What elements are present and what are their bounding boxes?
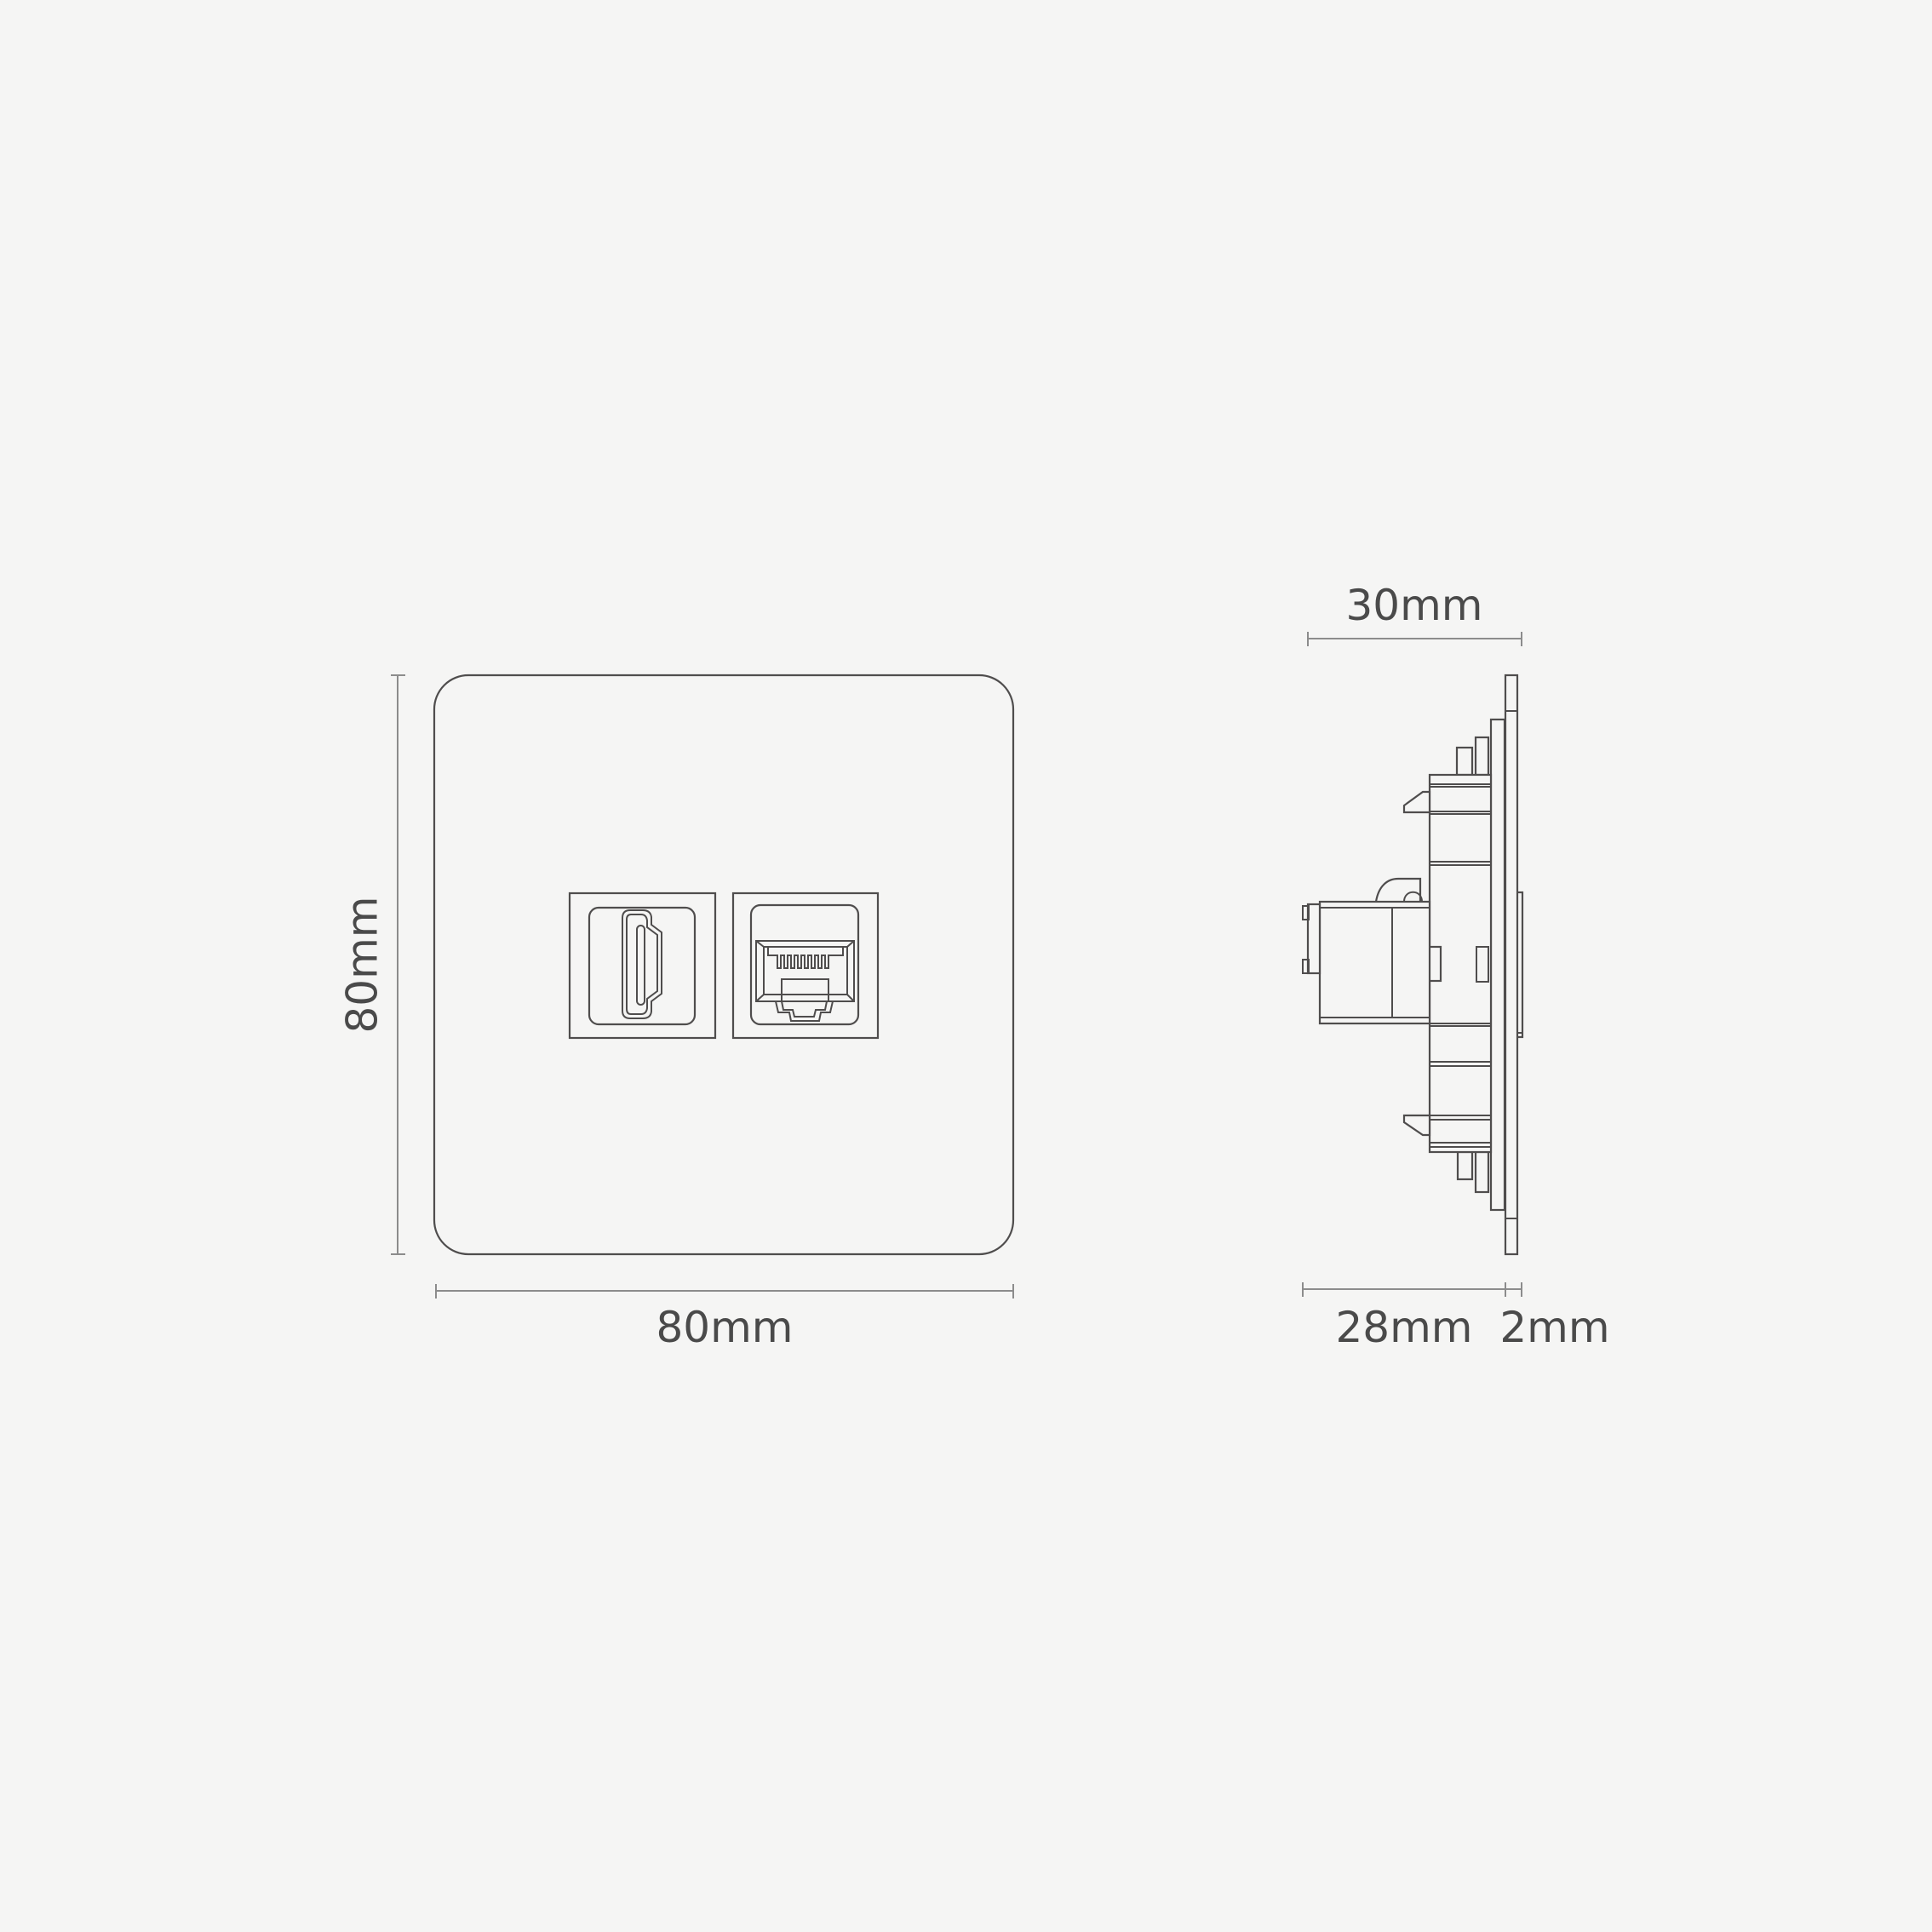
side-bottom-clip <box>1404 1115 1430 1135</box>
side-top-clip <box>1404 792 1430 812</box>
front-width-label: 80mm <box>656 1303 793 1352</box>
side-plate-thickness-label: 2mm <box>1499 1303 1609 1352</box>
front-height-label: 80mm <box>338 896 387 1033</box>
side-overall-depth-label: 30mm <box>1345 581 1482 630</box>
side-split-depth-dimension: 28mm 2mm <box>1303 1282 1610 1352</box>
side-keystone-module <box>1303 879 1430 1023</box>
side-bottom-prongs <box>1458 1152 1488 1192</box>
front-width-dimension: 80mm <box>436 1284 1013 1352</box>
keystone-latch <box>1376 879 1420 902</box>
dimension-diagram: 80mm 80mm 30mm 28mm 2mm <box>0 0 1932 1932</box>
side-view <box>1303 675 1522 1254</box>
rj45-module <box>733 893 878 1038</box>
side-overall-depth-dimension: 30mm <box>1308 581 1522 646</box>
hdmi-module <box>570 893 715 1038</box>
side-faceplate <box>1505 675 1517 1254</box>
front-height-dimension: 80mm <box>338 675 406 1254</box>
hdmi-port-icon <box>622 910 662 1018</box>
front-plate-outline <box>434 675 1013 1254</box>
side-top-prongs <box>1457 737 1488 775</box>
side-backplate <box>1491 719 1505 1210</box>
keystone-body <box>1320 902 1430 1023</box>
keystone-end-cap <box>1308 904 1320 973</box>
side-module-depth-label: 28mm <box>1335 1303 1472 1352</box>
ethernet-port-icon <box>756 941 854 1021</box>
diagram-canvas: 80mm 80mm 30mm 28mm 2mm <box>0 0 1932 1932</box>
front-view <box>434 675 1013 1254</box>
